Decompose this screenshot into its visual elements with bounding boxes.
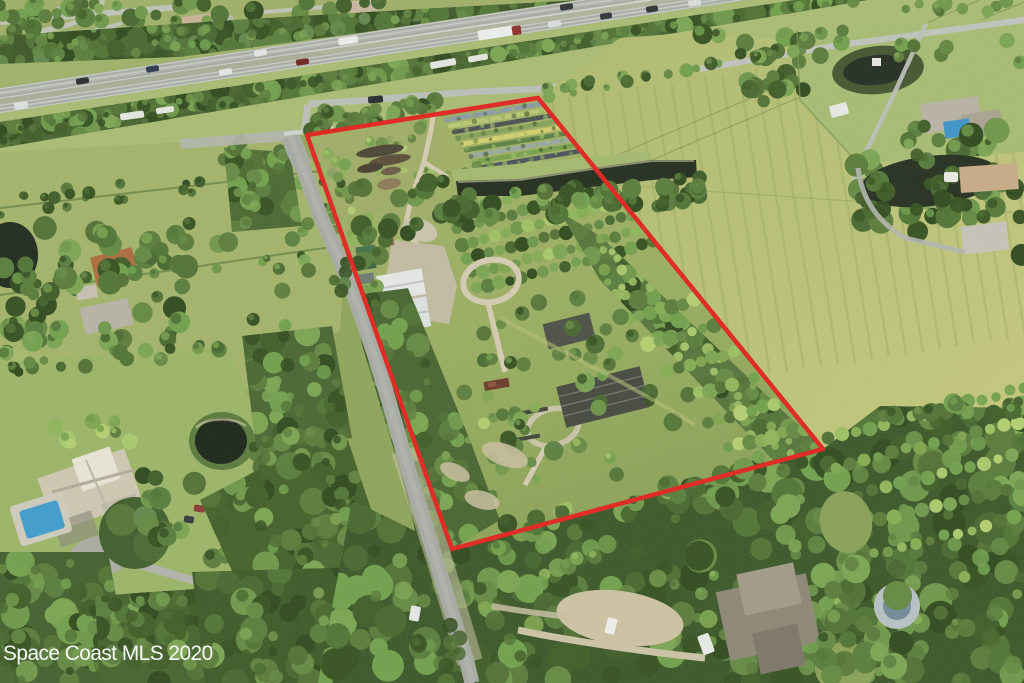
svg-text:Space Coast MLS 2020: Space Coast MLS 2020 (3, 642, 213, 665)
